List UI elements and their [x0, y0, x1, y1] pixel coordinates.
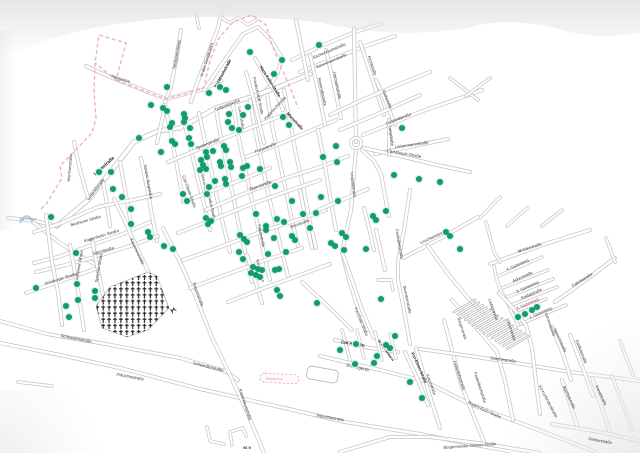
svg-text:ungenutzbar: ungenutzbar: [19, 217, 38, 221]
svg-text:KI 9: KI 9: [243, 445, 251, 450]
